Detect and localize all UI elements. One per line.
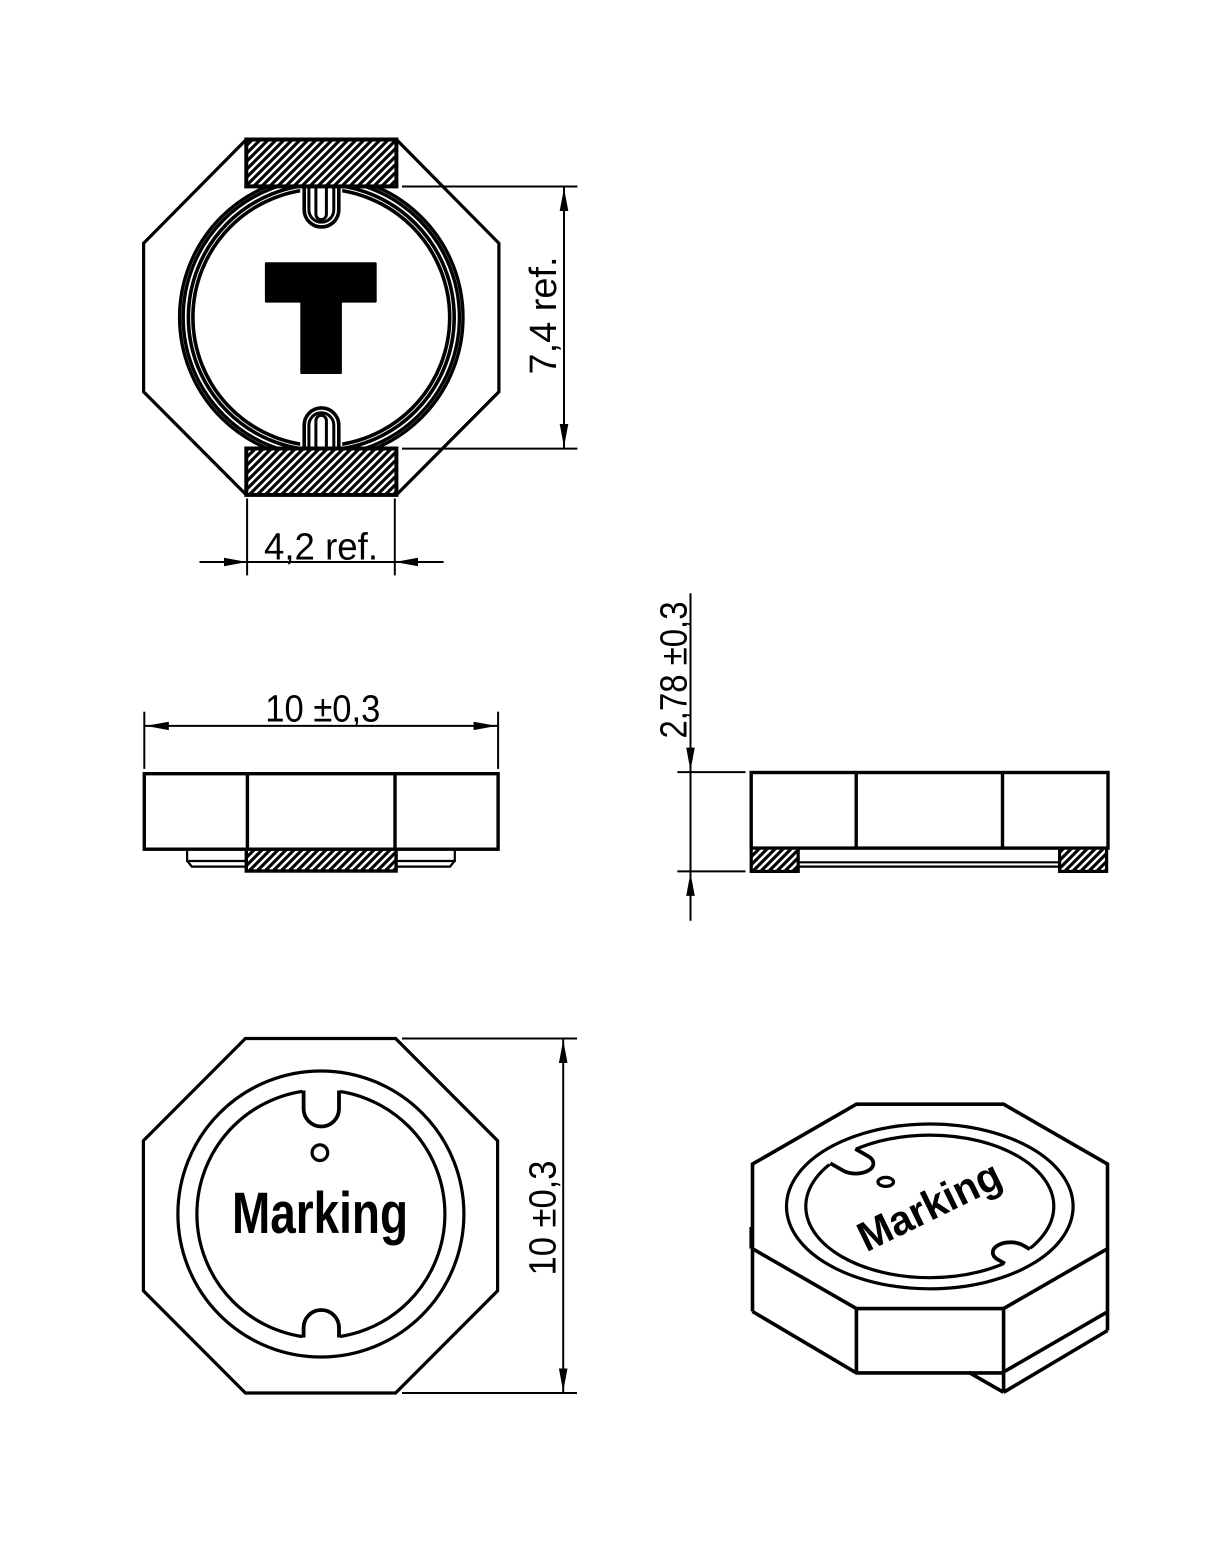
svg-text:10 ±0,3: 10 ±0,3 (523, 1161, 565, 1276)
svg-text:7,4 ref.: 7,4 ref. (523, 257, 565, 375)
svg-text:Marking: Marking (232, 1181, 408, 1246)
svg-text:4,2 ref.: 4,2 ref. (264, 527, 378, 569)
svg-text:10 ±0,3: 10 ±0,3 (265, 689, 380, 731)
svg-text:2,78 ±0,3: 2,78 ±0,3 (654, 602, 696, 739)
